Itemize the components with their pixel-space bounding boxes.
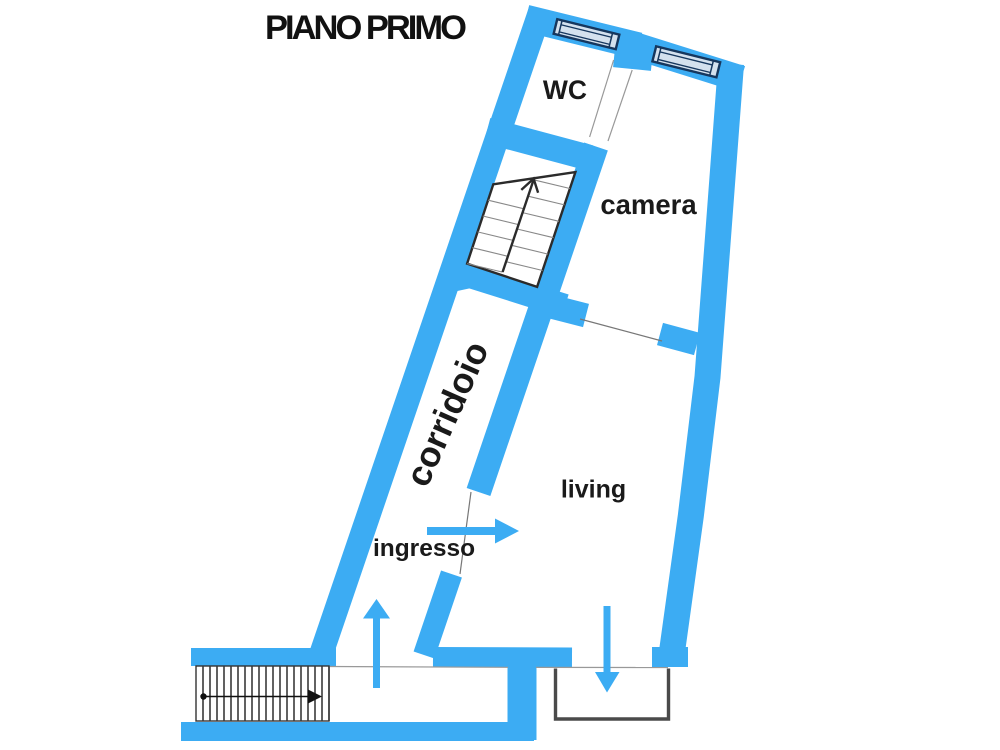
svg-text:camera: camera: [600, 189, 697, 220]
svg-text:WC: WC: [543, 75, 587, 105]
svg-text:living: living: [561, 476, 626, 504]
svg-text:ingresso: ingresso: [373, 535, 475, 562]
svg-text:PIANO PRIMO: PIANO PRIMO: [265, 9, 466, 47]
